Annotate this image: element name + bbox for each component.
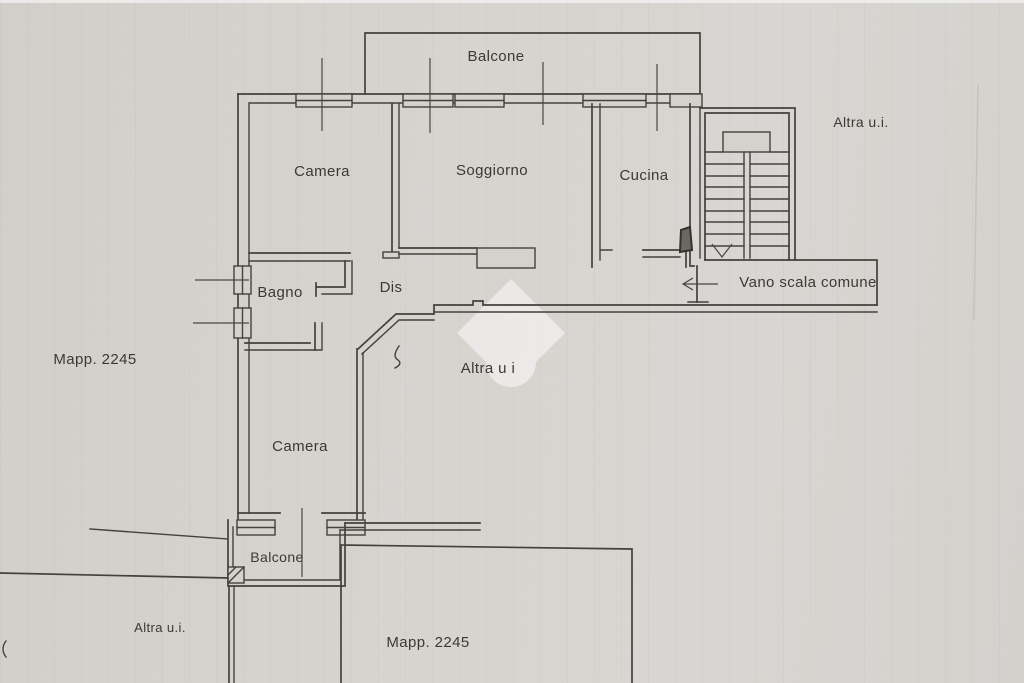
- label-soggiorno: Soggiorno: [456, 162, 528, 179]
- label-altra-ui-bottom: Altra u.i.: [134, 620, 186, 635]
- divider-foot: [383, 252, 399, 258]
- window-right-end: [670, 94, 702, 107]
- top-wall-windows: [296, 58, 702, 133]
- label-vano-scala: Vano scala comune: [739, 274, 876, 291]
- label-balcone-low: Balcone: [250, 549, 303, 565]
- label-camera-low: Camera: [272, 438, 328, 455]
- pen-squiggle: [395, 346, 400, 368]
- edge-mark: [3, 641, 6, 657]
- corridor-boundary-wall: [358, 301, 877, 354]
- interior-walls: [245, 104, 686, 350]
- label-balcone-top: Balcone: [467, 48, 524, 65]
- floor-plan-drawing: Balcone Camera Soggiorno Cucina Altra u.…: [0, 0, 1024, 683]
- label-dis: Dis: [380, 279, 403, 296]
- label-altra-ui-mid: Altra u i: [461, 360, 515, 377]
- label-mapp-bottom: Mapp. 2245: [386, 634, 469, 651]
- entry-door-leaf: [680, 227, 692, 252]
- lower-camera-walls: [237, 346, 400, 577]
- stair-steps: [705, 152, 789, 246]
- stair-upper-landing: [723, 132, 770, 152]
- paper-crease: [974, 85, 978, 320]
- label-altra-ui-top: Altra u.i.: [833, 114, 888, 130]
- scanned-floor-plan-page: Balcone Camera Soggiorno Cucina Altra u.…: [0, 0, 1024, 683]
- soggiorno-wall-block: [477, 248, 535, 268]
- label-bagno: Bagno: [257, 284, 302, 301]
- entry-walls: [680, 104, 718, 302]
- entry-arrow-icon: [683, 278, 718, 290]
- staircase: [705, 113, 789, 260]
- label-mapp-left: Mapp. 2245: [53, 351, 136, 368]
- bagno-windows: [193, 266, 251, 338]
- label-camera-top: Camera: [294, 163, 350, 180]
- label-cucina: Cucina: [619, 167, 668, 184]
- parcel-boundaries: [0, 529, 632, 683]
- balcony-top-outline: [365, 33, 700, 94]
